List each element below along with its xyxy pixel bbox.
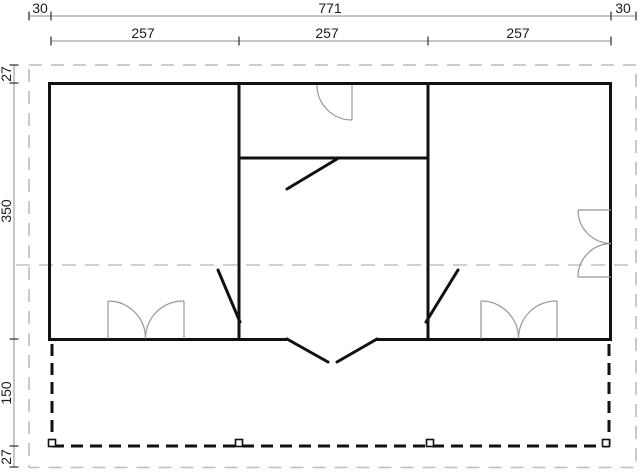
porch-post — [427, 440, 434, 447]
window-right-arc-left — [481, 301, 519, 339]
porch-post — [236, 440, 243, 447]
dim-label-overhang-left: 30 — [32, 0, 48, 16]
window-left-arc-left — [108, 301, 146, 339]
dim-label-overall-width: 771 — [318, 0, 342, 16]
dim-label-bay-3: 257 — [506, 25, 530, 41]
roof-overhang-outline — [29, 65, 636, 468]
door-hall-leaf — [287, 159, 337, 189]
porch-post — [603, 440, 610, 447]
window-left-arc-right — [145, 301, 184, 339]
window-east-arc-bottom — [578, 244, 611, 278]
front-door-leaf-left — [287, 339, 328, 362]
dim-label-overhang-right: 30 — [615, 0, 631, 16]
dim-label-house-depth: 350 — [0, 199, 14, 223]
dim-label-overhang-bottom: 27 — [0, 449, 14, 465]
door-room-left-leaf — [218, 270, 240, 322]
floor-plan-canvas: 30 771 30 257 257 257 27 350 150 27 — [0, 0, 640, 475]
window-right-arc-right — [519, 301, 558, 339]
window-east-arc-top — [578, 210, 611, 244]
dim-label-porch-depth: 150 — [0, 381, 14, 405]
porch-post — [49, 440, 56, 447]
dim-label-bay-1: 257 — [131, 25, 155, 41]
floor-plan-page: 30 771 30 257 257 257 27 350 150 27 — [0, 0, 640, 475]
dim-label-bay-2: 257 — [315, 25, 339, 41]
front-door-leaf-right — [337, 339, 377, 362]
door-room-right-leaf — [426, 270, 458, 322]
dim-label-overhang-top: 27 — [0, 66, 14, 82]
back-door-swing-arc — [317, 85, 352, 120]
